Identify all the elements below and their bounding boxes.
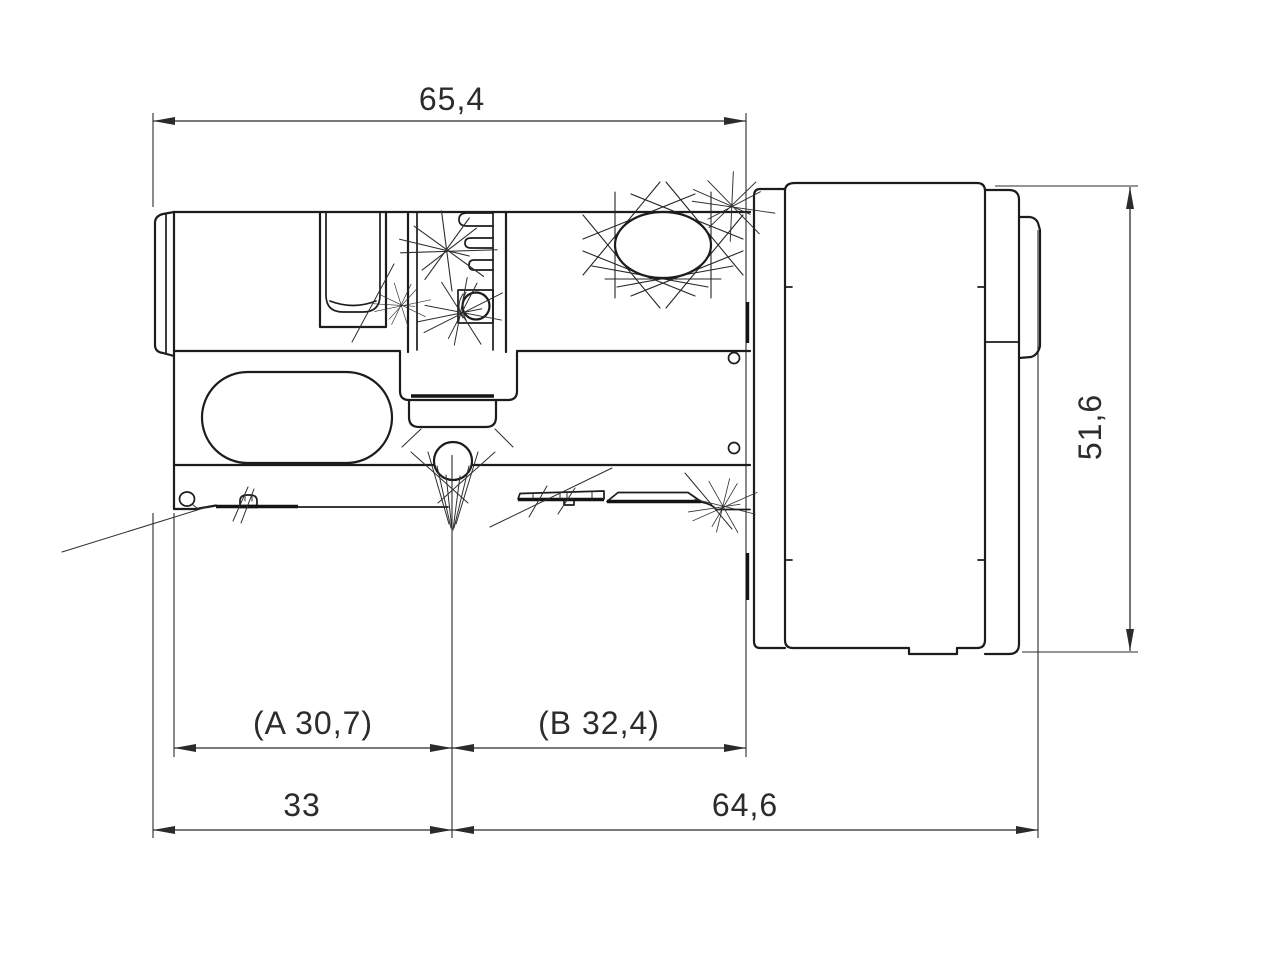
dim-top-width-label: 65,4 [419, 81, 485, 117]
left-end-cap [155, 212, 174, 356]
fin [465, 238, 493, 248]
dim-bottom-left-label: 33 [283, 787, 321, 823]
oval-cutout [202, 372, 392, 463]
dim-right-height-label: 51,6 [1072, 394, 1108, 460]
screw [729, 443, 740, 454]
dim-a-label: (A 30,7) [253, 705, 373, 741]
screw [729, 353, 740, 364]
dimension-b-segment: (B 32,4) [452, 705, 746, 752]
dimension-bottom-right: 64,6 [452, 787, 1038, 834]
dim-bottom-right-label: 64,6 [712, 787, 778, 823]
knob-ring [985, 190, 1019, 654]
battery-cap [1019, 217, 1040, 358]
knob-neck [748, 189, 786, 648]
technical-drawing-page: 65,4 51,6 (A 30,7) (B 32,4) 33 64,6 [0, 0, 1280, 960]
knob-body [785, 183, 985, 654]
u-slot [320, 212, 386, 327]
dim-b-label: (B 32,4) [538, 705, 660, 741]
knob-assembly [748, 183, 1041, 654]
dimension-a-segment: (A 30,7) [174, 705, 452, 752]
dimension-right-height: 51,6 [1072, 187, 1134, 651]
fin [459, 213, 493, 226]
cam-pin [411, 442, 495, 838]
dimension-bottom-left: 33 [153, 787, 452, 834]
dimension-top-width: 65,4 [153, 81, 746, 125]
cylinder-lock-drawing: 65,4 51,6 (A 30,7) (B 32,4) 33 64,6 [0, 0, 1280, 960]
